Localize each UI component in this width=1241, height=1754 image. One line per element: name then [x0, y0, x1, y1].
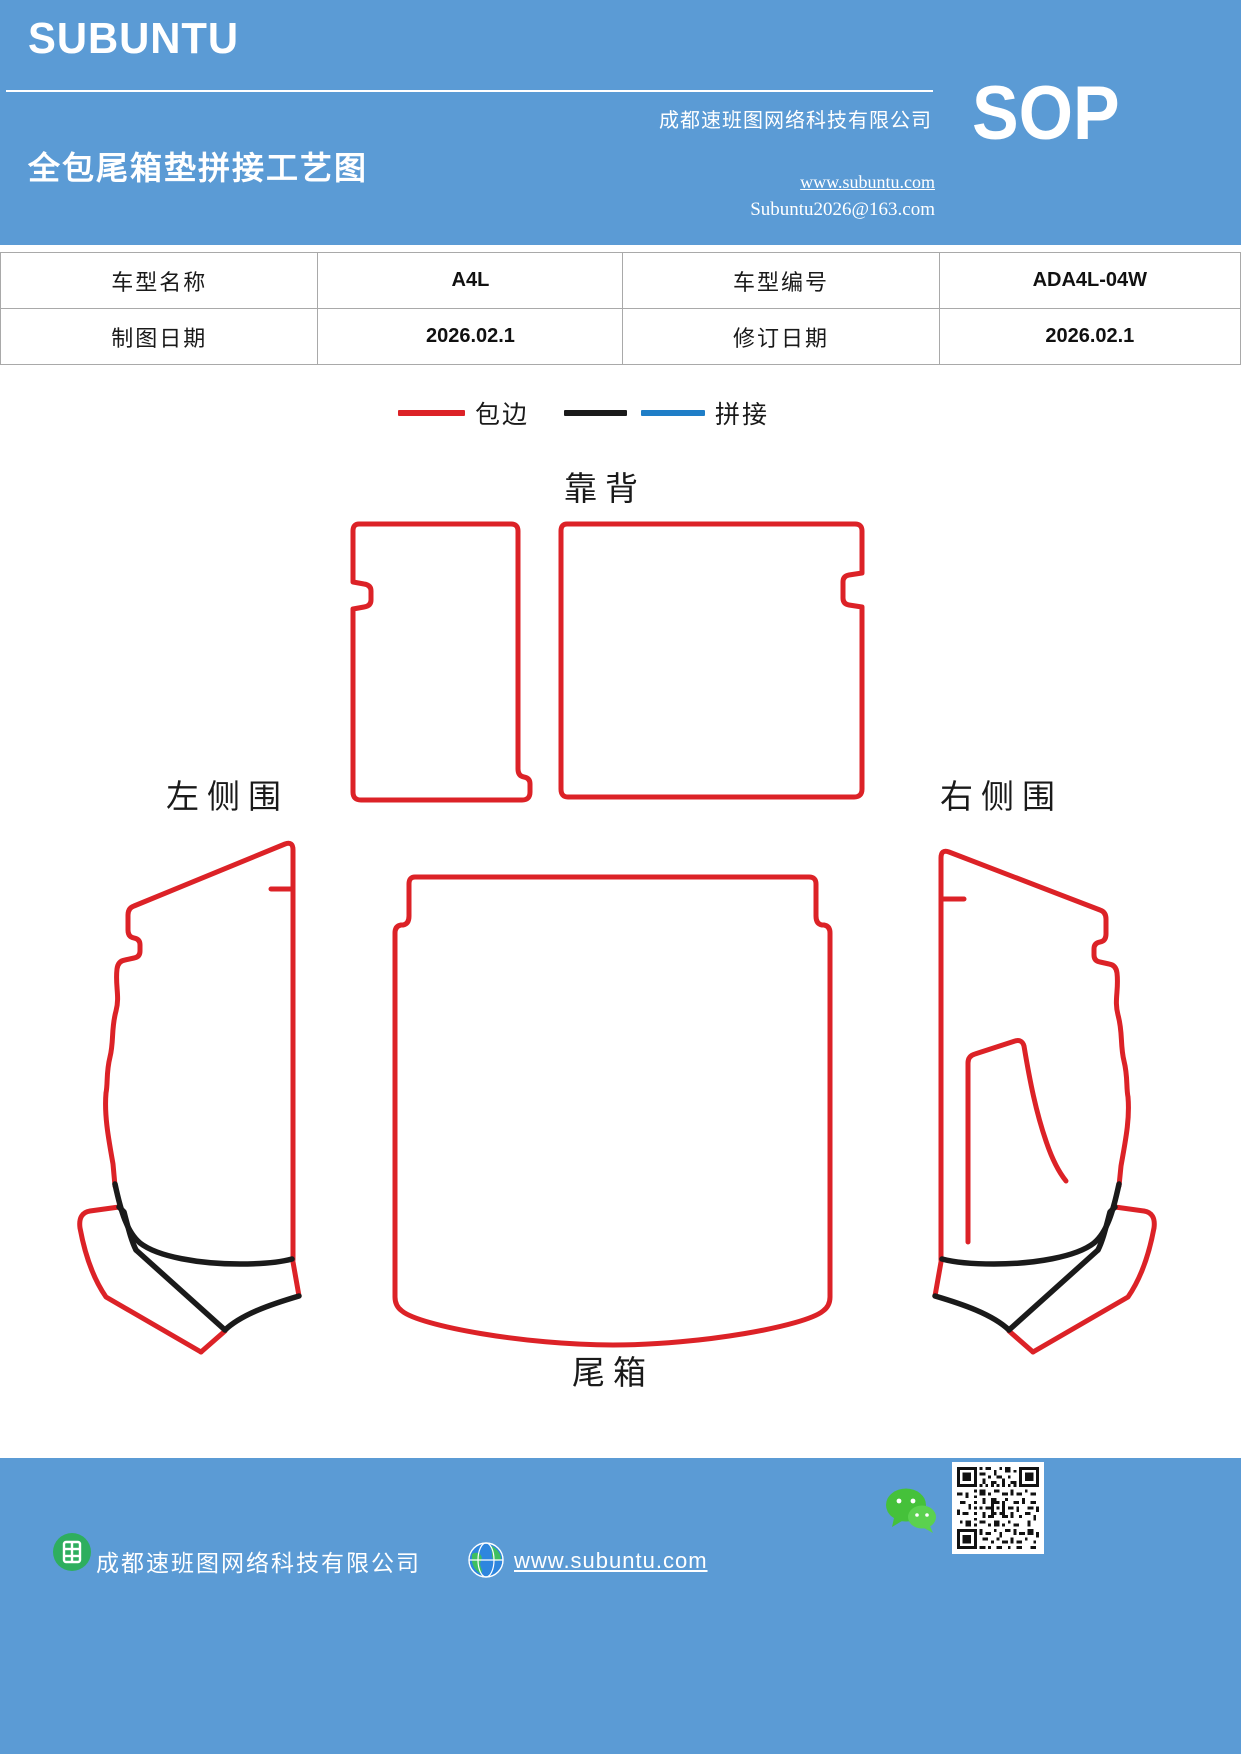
wechat-icon — [884, 1486, 938, 1534]
footer-company-name: 成都速班图网络科技有限公司 — [96, 1544, 421, 1578]
sop-document-page: SUBUNTU 成都速班图网络科技有限公司 全包尾箱垫拼接工艺图 www.sub… — [0, 0, 1241, 1754]
globe-icon — [468, 1542, 504, 1578]
right-stitch-lines — [935, 1184, 1119, 1330]
qr-code — [952, 1462, 1044, 1554]
backrest-small-outline — [353, 524, 530, 800]
pattern-diagram — [0, 0, 1241, 1430]
backrest-big-outline — [561, 524, 862, 797]
right-side-piece — [935, 851, 1154, 1352]
left-side-piece — [80, 843, 299, 1352]
footer: 成都速班图网络科技有限公司 www.subuntu.com — [0, 1458, 1241, 1754]
building-icon — [52, 1532, 92, 1572]
left-stitch-lines — [115, 1184, 299, 1330]
trunk-outline — [395, 877, 830, 1345]
footer-website-link[interactable]: www.subuntu.com — [514, 1548, 708, 1574]
